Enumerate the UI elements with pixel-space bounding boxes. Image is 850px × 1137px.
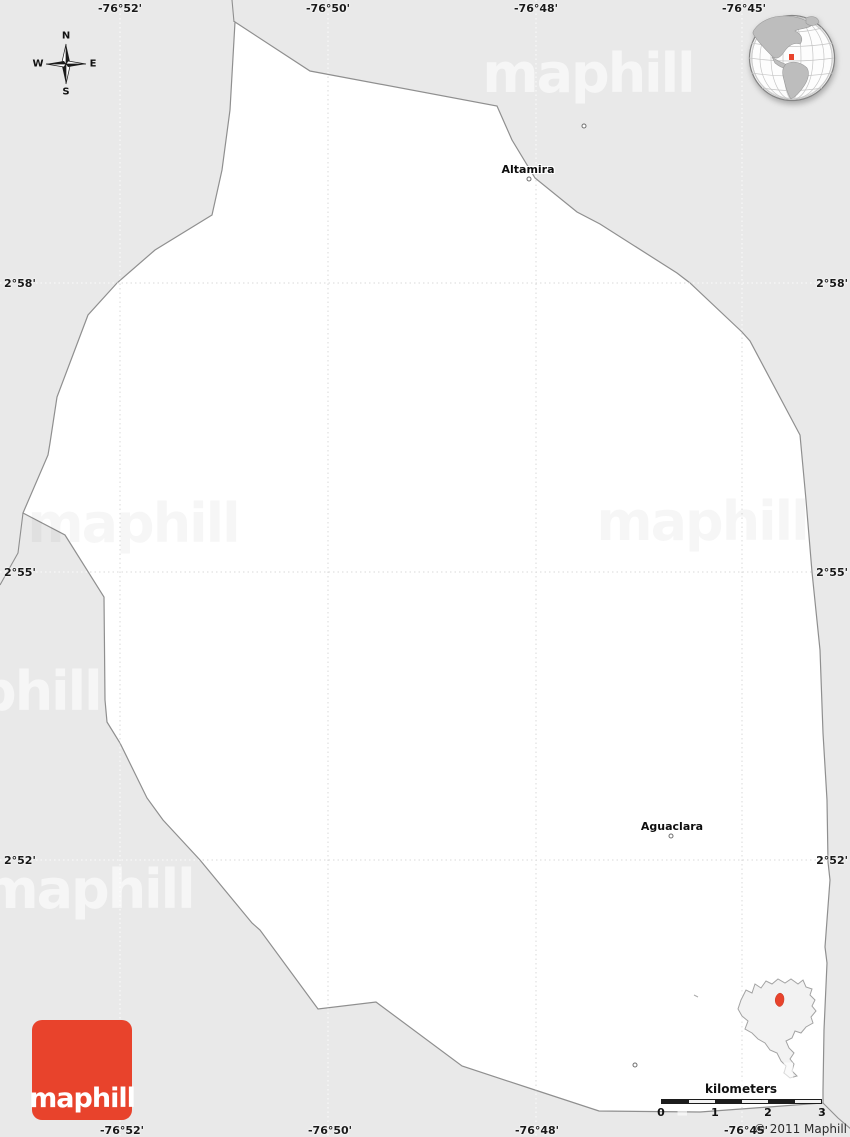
maphill-logo[interactable]: maphill [32, 1020, 132, 1120]
scale-bar-segment [662, 1100, 689, 1103]
locator-globe-icon [749, 16, 835, 101]
greenland-shape [806, 17, 819, 26]
scale-bar-segment [795, 1100, 822, 1103]
scale-bar [661, 1099, 822, 1104]
map-page: maphill maphill maphill maphill maphill … [0, 0, 850, 1137]
scale-tick: 1 [711, 1106, 719, 1119]
copyright-notice: © 2011 Maphill [754, 1122, 847, 1136]
region-polygon [23, 22, 830, 1112]
maphill-logo-text: maphill [29, 1083, 135, 1114]
place-label-altamira: Altamira [501, 163, 554, 176]
altamira-dot [527, 177, 531, 181]
compass-rose-icon [46, 44, 86, 84]
neighbor-border-line [232, 0, 234, 22]
aguaclara-dot [669, 834, 673, 838]
scale-bar-title: kilometers [705, 1082, 777, 1096]
compass-east-label: E [90, 59, 97, 70]
place-label-aguaclara: Aguaclara [641, 820, 703, 833]
scale-bar-segment [689, 1100, 716, 1103]
map-canvas [0, 0, 850, 1137]
scale-tick: 0 [657, 1106, 665, 1119]
settlement-dot [582, 124, 586, 128]
compass-west-label: W [32, 59, 43, 70]
compass-south-label: S [62, 87, 69, 98]
scale-tick: 3 [818, 1106, 826, 1119]
settlement-dot [633, 1063, 637, 1067]
scale-bar-segment [742, 1100, 769, 1103]
globe-location-marker [789, 54, 794, 60]
neighbor-border-line [0, 513, 23, 585]
scale-bar-segment [715, 1100, 742, 1103]
scale-tick: 2 [764, 1106, 772, 1119]
scale-bar-segment [768, 1100, 795, 1103]
compass-north-label: N [62, 31, 70, 42]
